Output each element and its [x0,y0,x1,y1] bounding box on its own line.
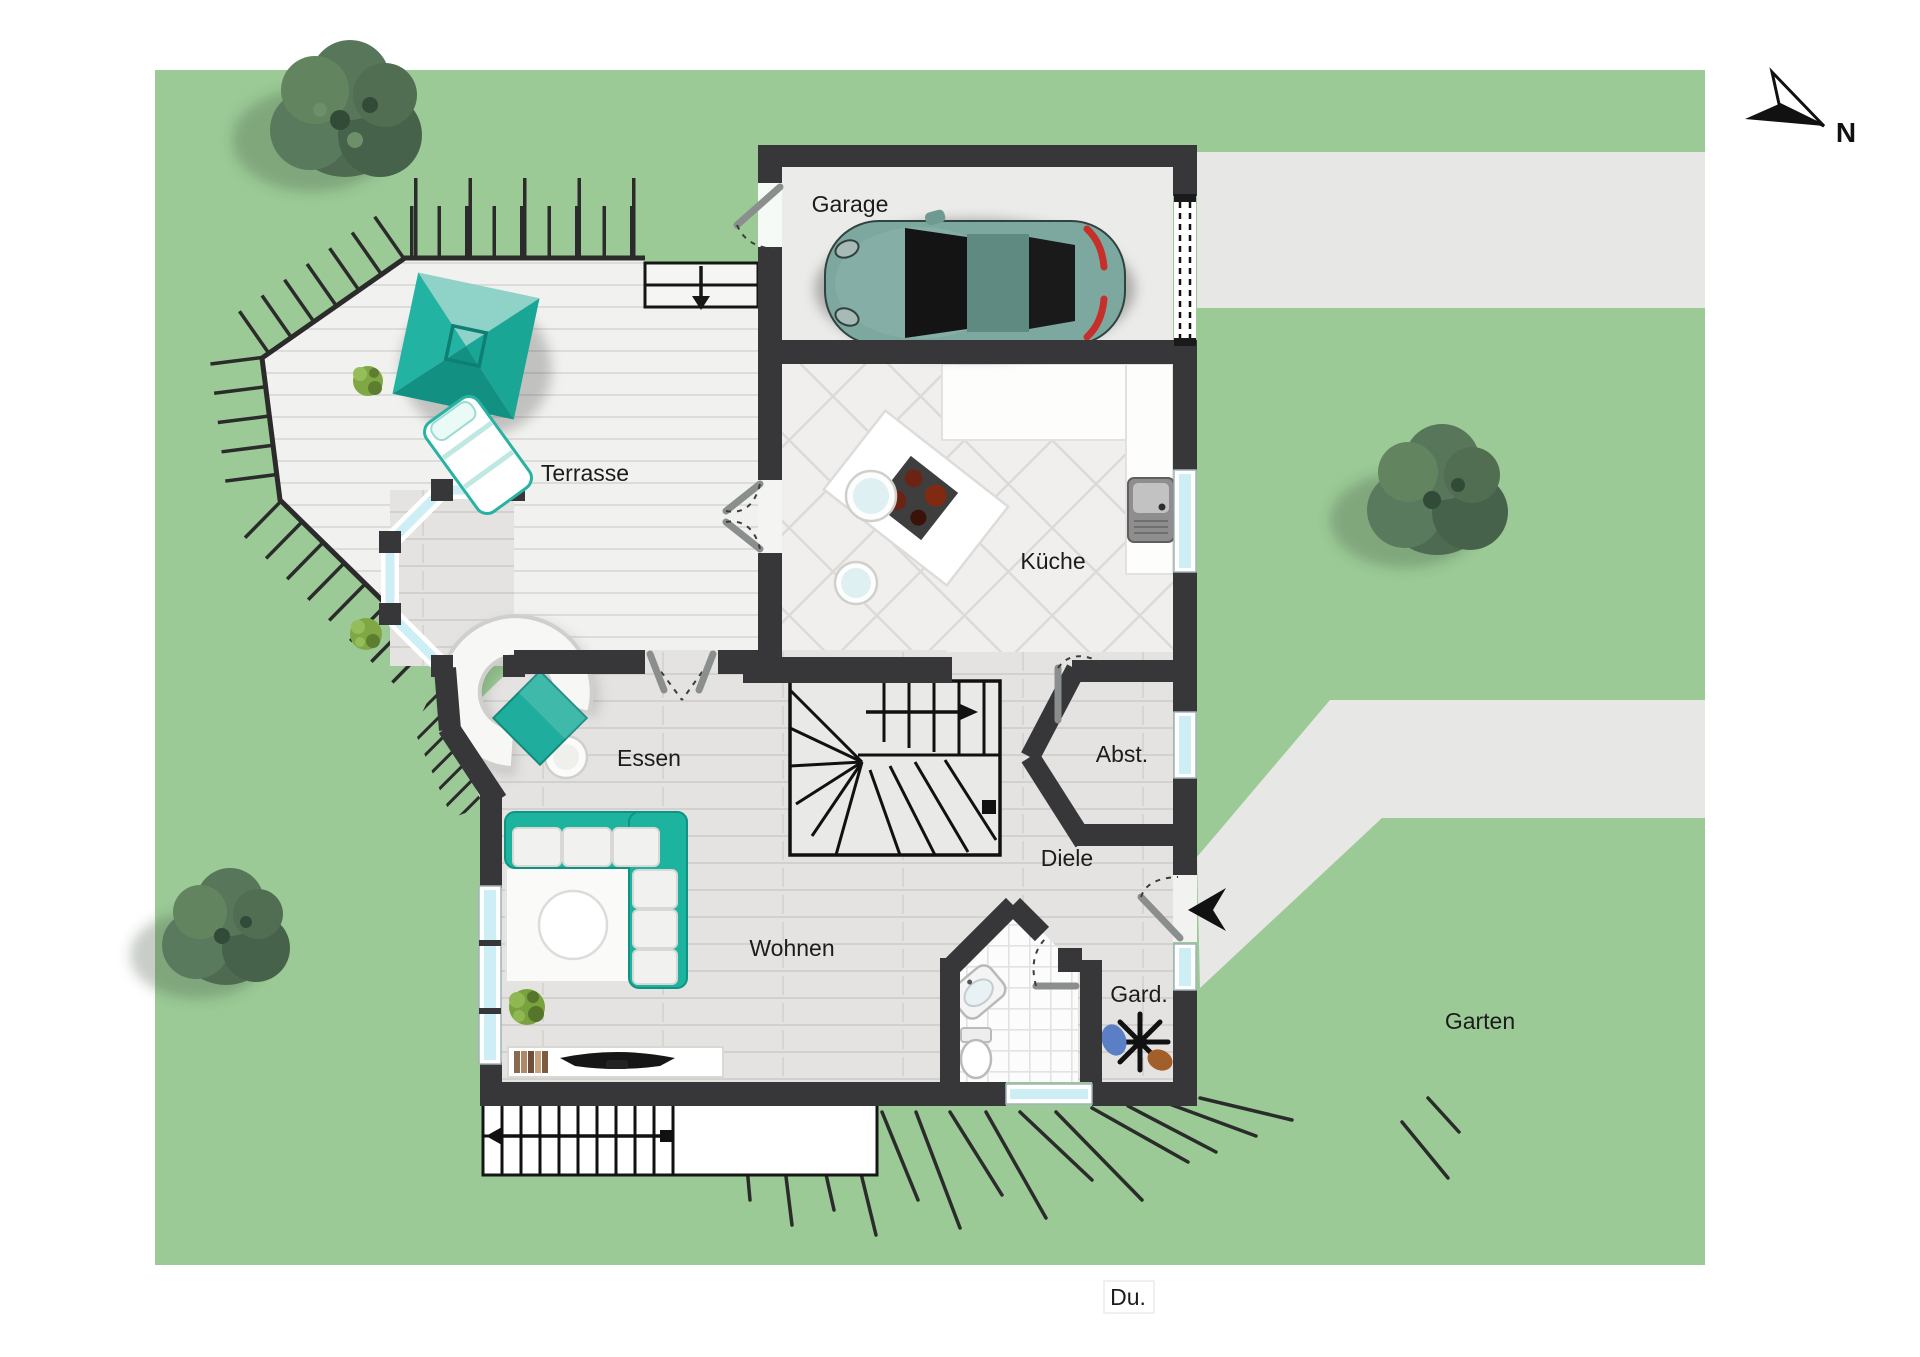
toilet [961,1028,991,1078]
entry-sidelight [1174,944,1196,990]
interior-stair [790,681,1000,855]
rear-window [1029,237,1075,329]
potted-plant [509,989,545,1025]
faucet [1159,504,1166,511]
exterior-stair [483,1097,877,1175]
kitchen-sink [1128,478,1174,542]
room-label-wohnen: Wohnen [749,935,834,961]
room-label-du: Du. [1110,1284,1146,1310]
room-label-diele: Diele [1041,845,1093,871]
room-label-gard: Gard. [1110,981,1168,1007]
room-label-abst: Abst. [1096,741,1148,767]
floorplan-svg: Garage Terrasse Küche Essen Abst. Diele … [0,0,1920,1357]
north-arrow-icon [1745,72,1824,126]
room-label-garage: Garage [812,191,889,217]
driveway [1197,152,1705,308]
sideboard [508,1047,723,1077]
windshield [905,228,967,338]
room-label-terrasse: Terrasse [541,460,629,486]
north-label: N [1836,117,1856,148]
tree [232,40,422,192]
room-label-kueche: Küche [1020,548,1085,574]
room-label-essen: Essen [617,745,681,771]
window [479,886,501,1064]
car [815,209,1135,359]
window [1174,470,1196,572]
floorplan-page: Garage Terrasse Küche Essen Abst. Diele … [0,0,1920,1357]
garage-door [1174,194,1196,346]
terrace-steps [645,263,758,310]
area-label-garten: Garten [1445,1008,1515,1034]
coffee-table [539,891,607,959]
window [1006,1084,1092,1104]
car-roof [967,234,1029,332]
books [514,1051,548,1073]
window [1174,712,1196,778]
